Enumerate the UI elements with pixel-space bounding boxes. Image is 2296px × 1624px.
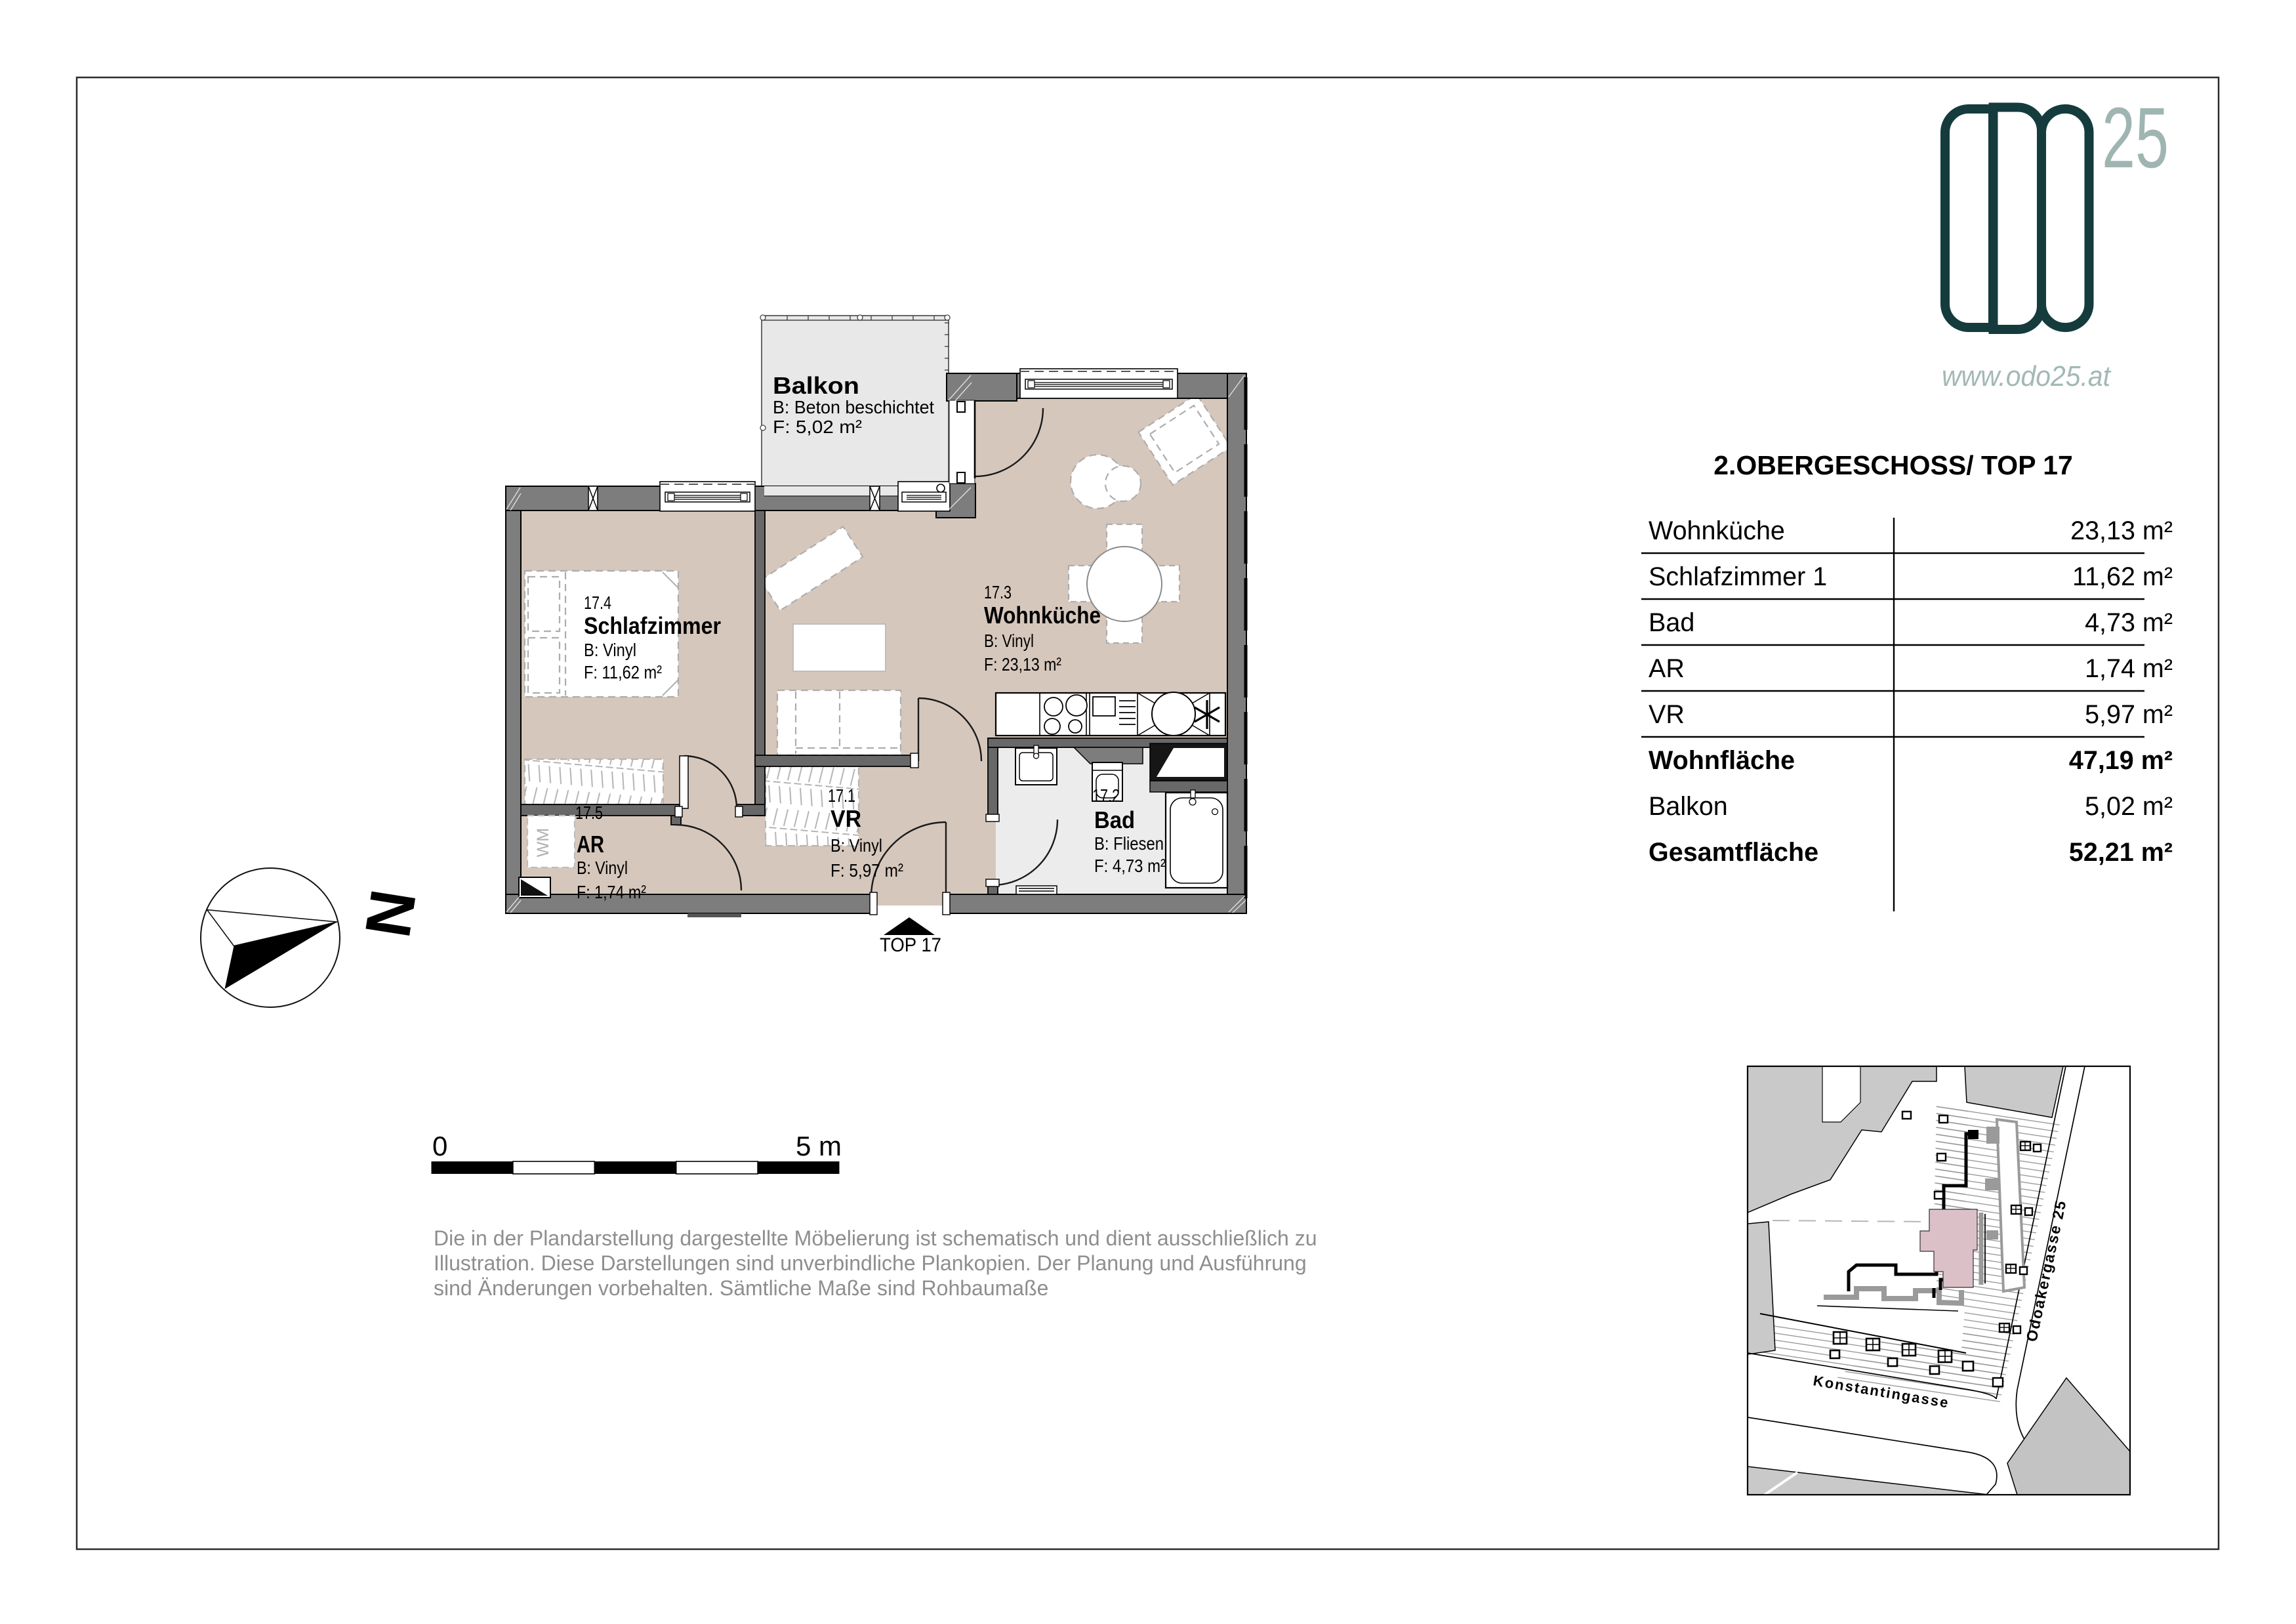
svg-text:Wohnküche: Wohnküche	[1649, 516, 1785, 545]
svg-text:Schlafzimmer 1: Schlafzimmer 1	[1649, 562, 1827, 591]
svg-text:4,73 m²: 4,73 m²	[2085, 608, 2173, 637]
svg-text:www.odo25.at: www.odo25.at	[1942, 360, 2112, 392]
svg-text:5,97 m²: 5,97 m²	[2085, 700, 2173, 729]
svg-text:AR: AR	[577, 831, 604, 858]
svg-text:B: Vinyl: B: Vinyl	[984, 631, 1034, 651]
svg-text:17.1: 17.1	[828, 785, 855, 806]
svg-text:47,19 m²: 47,19 m²	[2069, 746, 2173, 775]
svg-text:17.3: 17.3	[984, 582, 1012, 602]
svg-text:1,74 m²: 1,74 m²	[2085, 654, 2173, 683]
svg-text:Balkon: Balkon	[773, 372, 859, 399]
svg-text:Balkon: Balkon	[1649, 792, 1728, 821]
svg-text:17.5: 17.5	[575, 802, 603, 823]
svg-text:11,62 m²: 11,62 m²	[2072, 562, 2173, 591]
svg-text:0: 0	[432, 1131, 447, 1161]
svg-text:52,21 m²: 52,21 m²	[2069, 838, 2173, 867]
svg-text:F: 11,62 m²: F: 11,62 m²	[584, 662, 662, 682]
svg-text:23,13 m²: 23,13 m²	[2070, 516, 2173, 545]
svg-text:F: 5,97 m²: F: 5,97 m²	[830, 860, 903, 881]
svg-text:VR: VR	[830, 805, 861, 832]
svg-text:B: Fliesen: B: Fliesen	[1094, 833, 1164, 854]
svg-text:Bad: Bad	[1094, 806, 1135, 833]
svg-text:B: Vinyl: B: Vinyl	[577, 858, 628, 878]
svg-text:F: 23,13 m²: F: 23,13 m²	[984, 654, 1061, 675]
svg-text:Gesamtfläche: Gesamtfläche	[1649, 838, 1818, 867]
svg-text:Die in der Plandarstellung dar: Die in der Plandarstellung dargestellte …	[434, 1226, 1317, 1250]
svg-text:Wohnküche: Wohnküche	[984, 602, 1101, 629]
svg-text:B: Vinyl: B: Vinyl	[584, 640, 636, 660]
svg-text:5,02 m²: 5,02 m²	[2085, 792, 2173, 821]
svg-text:WM: WM	[534, 828, 552, 857]
svg-text:17.4: 17.4	[584, 593, 611, 613]
svg-text:B: Beton beschichtet: B: Beton beschichtet	[773, 397, 934, 417]
svg-text:25: 25	[2102, 89, 2169, 186]
svg-text:F: 1,74 m²: F: 1,74 m²	[577, 882, 646, 902]
svg-text:17.2: 17.2	[1092, 785, 1120, 806]
svg-text:F: 4,73 m²: F: 4,73 m²	[1094, 856, 1166, 876]
svg-text:5 m: 5 m	[796, 1131, 842, 1161]
svg-text:F: 5,02 m²: F: 5,02 m²	[773, 417, 862, 437]
svg-text:AR: AR	[1649, 654, 1685, 683]
svg-text:sind Änderungen vorbehalten. S: sind Änderungen vorbehalten. Sämtliche M…	[434, 1276, 1048, 1300]
svg-text:TOP 17: TOP 17	[880, 934, 941, 956]
svg-text:Wohnfläche: Wohnfläche	[1649, 746, 1795, 775]
svg-text:VR: VR	[1649, 700, 1685, 729]
svg-text:Illustration. Diese Darstellun: Illustration. Diese Darstellungen sind u…	[434, 1251, 1307, 1275]
svg-text:Schlafzimmer: Schlafzimmer	[584, 612, 721, 639]
svg-text:B: Vinyl: B: Vinyl	[830, 835, 882, 856]
svg-text:Bad: Bad	[1649, 608, 1694, 637]
svg-text:2.OBERGESCHOSS/ TOP 17: 2.OBERGESCHOSS/ TOP 17	[1713, 450, 2073, 480]
